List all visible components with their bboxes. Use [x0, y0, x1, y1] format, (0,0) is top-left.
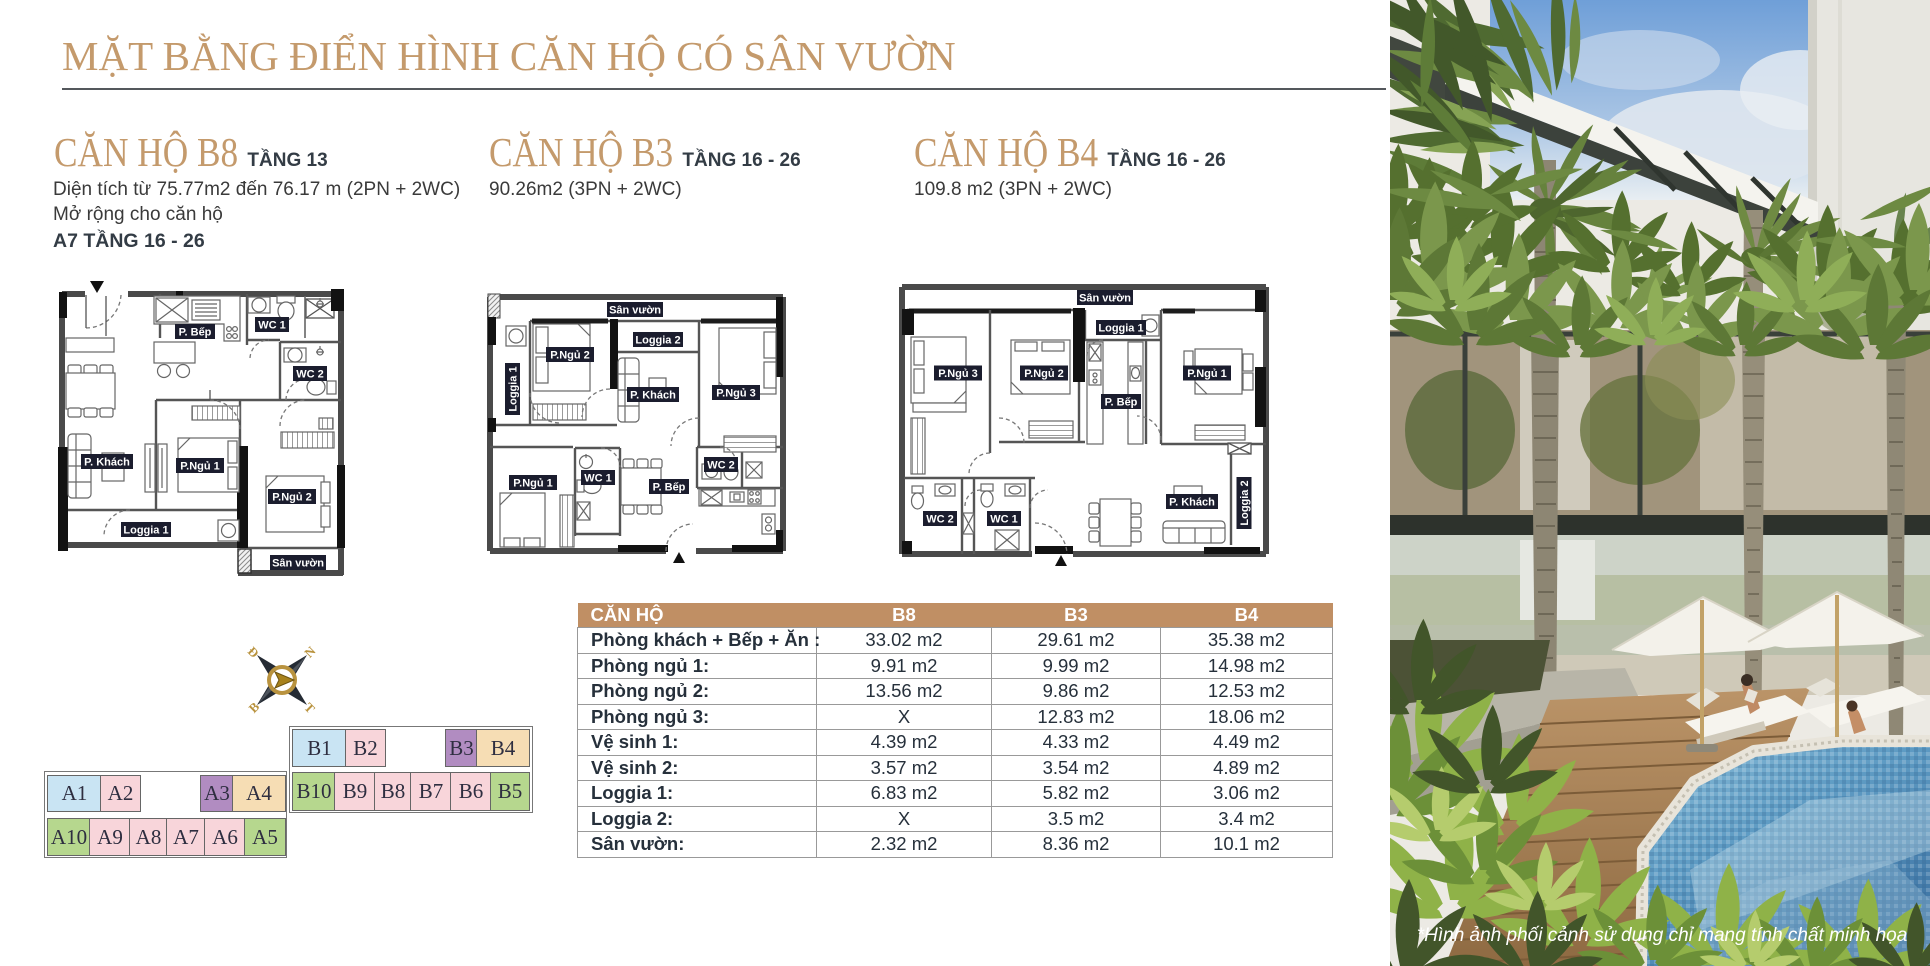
- svg-text:Loggia 2: Loggia 2: [1239, 480, 1251, 525]
- svg-text:P.Ngủ 2: P.Ngủ 2: [550, 350, 590, 362]
- svg-text:P.Ngủ 3: P.Ngủ 3: [716, 388, 756, 400]
- svg-text:WC 1: WC 1: [258, 320, 286, 332]
- svg-text:WC 1: WC 1: [990, 514, 1018, 526]
- svg-text:WC 2: WC 2: [926, 514, 954, 526]
- svg-text:P.Ngủ 3: P.Ngủ 3: [938, 368, 978, 380]
- svg-text:Sân vườn: Sân vườn: [1079, 293, 1131, 305]
- svg-text:P.Ngủ 1: P.Ngủ 1: [1187, 368, 1227, 380]
- svg-text:P. Bếp: P. Bếp: [179, 327, 212, 339]
- svg-text:WC 2: WC 2: [296, 369, 324, 381]
- svg-text:P.Ngủ 2: P.Ngủ 2: [1024, 368, 1064, 380]
- svg-text:*Hình ảnh phối cảnh sử dụng ch: *Hình ảnh phối cảnh sử dụng chỉ mang tín…: [1417, 925, 1908, 946]
- svg-text:P.Ngủ 1: P.Ngủ 1: [513, 478, 553, 490]
- svg-text:Loggia 2: Loggia 2: [635, 335, 680, 347]
- svg-text:Sân vườn: Sân vườn: [272, 558, 324, 570]
- svg-text:WC 1: WC 1: [584, 473, 612, 485]
- svg-text:P. Khách: P. Khách: [84, 457, 130, 469]
- svg-text:P.Ngủ 1: P.Ngủ 1: [180, 461, 220, 473]
- svg-text:P. Bếp: P. Bếp: [1105, 397, 1138, 409]
- svg-text:Sân vườn: Sân vườn: [609, 305, 661, 317]
- svg-text:P. Khách: P. Khách: [1169, 497, 1215, 509]
- svg-text:P.Ngủ 2: P.Ngủ 2: [272, 492, 312, 504]
- svg-text:P. Khách: P. Khách: [630, 390, 676, 402]
- svg-text:Loggia 1: Loggia 1: [508, 366, 520, 411]
- svg-text:P. Bếp: P. Bếp: [653, 482, 686, 494]
- svg-text:WC 2: WC 2: [707, 460, 735, 472]
- svg-text:Loggia 1: Loggia 1: [1098, 323, 1143, 335]
- svg-text:Loggia 1: Loggia 1: [123, 525, 168, 537]
